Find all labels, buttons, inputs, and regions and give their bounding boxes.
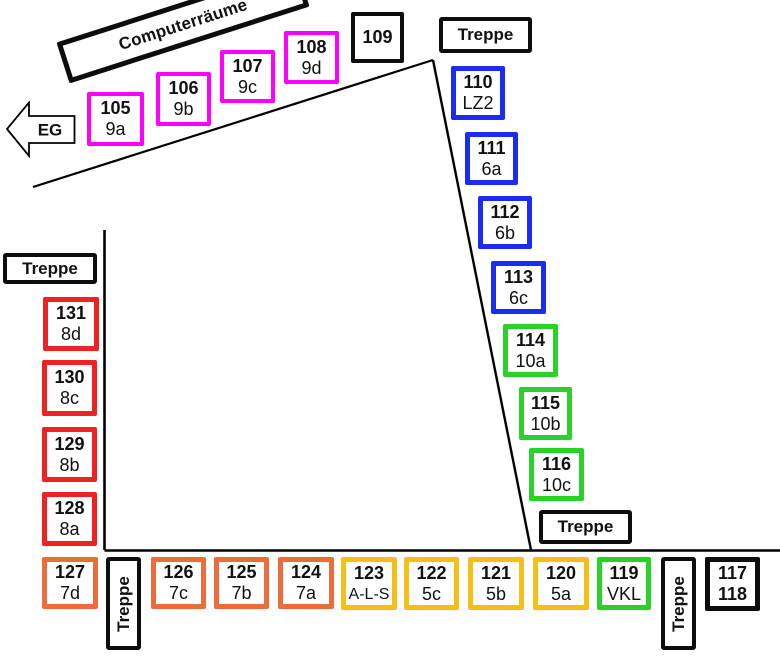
svg-text:EG: EG [38,121,63,140]
